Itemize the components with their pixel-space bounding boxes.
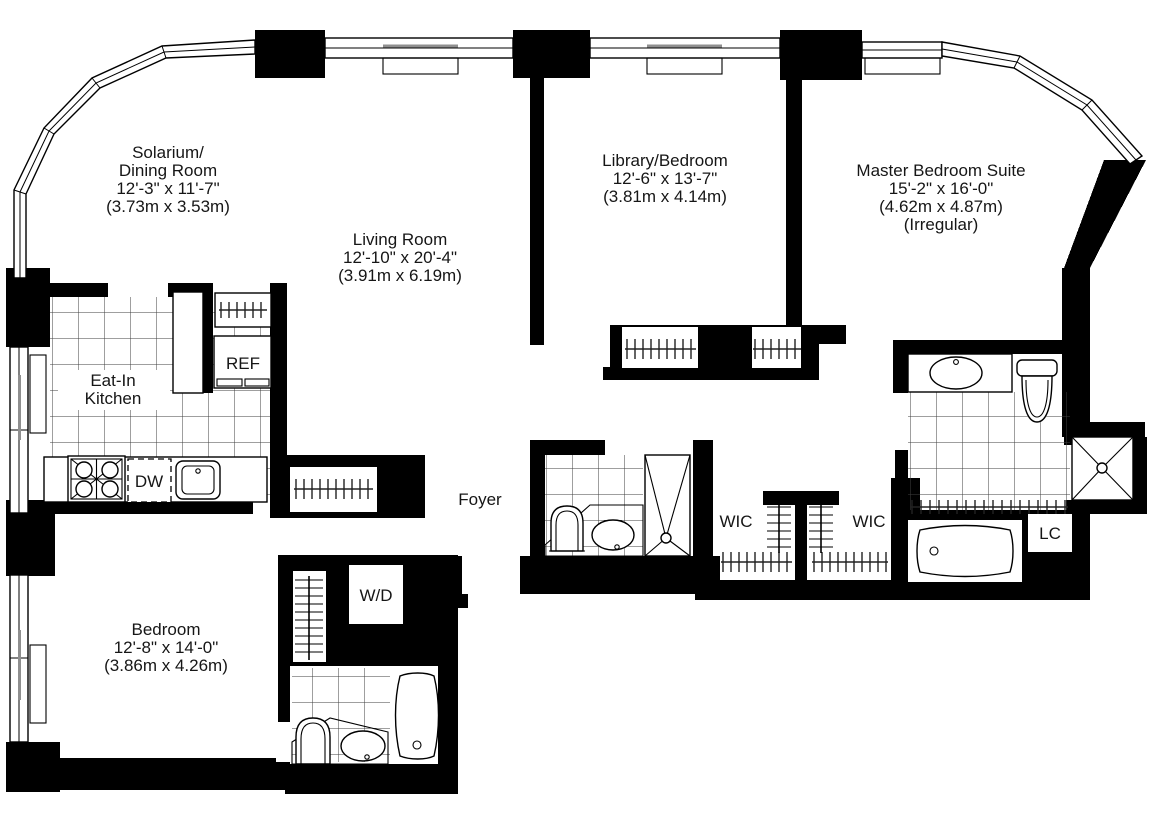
bathroom2-door-opening	[276, 722, 292, 762]
svg-text:(3.81m x 4.14m): (3.81m x 4.14m)	[603, 187, 727, 206]
svg-text:Eat-In: Eat-In	[90, 371, 135, 390]
svg-text:(3.86m x 4.26m): (3.86m x 4.26m)	[104, 656, 228, 675]
svg-text:Solarium/: Solarium/	[132, 143, 204, 162]
svg-text:15'-2" x 16'-0": 15'-2" x 16'-0"	[889, 179, 994, 198]
solarium-label: Solarium/ Dining Room 12'-3" x 11'-7" (3…	[106, 143, 230, 216]
kitchen-peninsula-counter	[173, 292, 203, 393]
toilet	[549, 506, 585, 551]
kitchen-label: Eat-In Kitchen	[58, 370, 170, 410]
master-shower	[1072, 437, 1133, 500]
refrigerator-label: REF	[226, 354, 260, 373]
angled-corner-wall	[1064, 160, 1146, 445]
floor-plan: Solarium/ Dining Room 12'-3" x 11'-7" (3…	[0, 0, 1151, 825]
bedroom-radiator	[30, 645, 46, 723]
svg-text:12'-8" x 14'-0": 12'-8" x 14'-0"	[114, 638, 219, 657]
kitchen-sink	[176, 461, 220, 499]
svg-text:(3.91m x 6.19m): (3.91m x 6.19m)	[338, 266, 462, 285]
wic-left-shelf	[767, 503, 791, 553]
dishwasher-label: DW	[135, 472, 163, 491]
svg-text:(4.62m x 4.87m): (4.62m x 4.87m)	[879, 197, 1003, 216]
vanity-sink	[908, 354, 1012, 392]
svg-text:Living Room: Living Room	[353, 230, 448, 249]
master-bath-door-opening	[893, 393, 908, 450]
wic-right-rod	[812, 552, 888, 572]
svg-text:12'-6" x 13'-7": 12'-6" x 13'-7"	[613, 169, 718, 188]
master-bedroom-label: Master Bedroom Suite 15'-2" x 16'-0" (4.…	[856, 161, 1025, 234]
wic-left-label: WIC	[719, 512, 752, 531]
stove	[68, 456, 125, 502]
library-closet-left	[622, 327, 698, 368]
bay-window-right	[942, 42, 1142, 164]
bedroom-label: Bedroom 12'-8" x 14'-0" (3.86m x 4.26m)	[104, 620, 228, 675]
svg-text:Dining Room: Dining Room	[119, 161, 217, 180]
kitchen-radiator	[30, 355, 46, 433]
svg-text:12'-3" x 11'-7": 12'-3" x 11'-7"	[116, 179, 219, 198]
foyer-label: Foyer	[458, 490, 502, 509]
svg-text:12'-10" x 20'-4": 12'-10" x 20'-4"	[343, 248, 457, 267]
window-seat-living	[383, 58, 458, 74]
wic-left-rod	[721, 552, 792, 572]
linen-closet-label: LC	[1039, 524, 1061, 543]
svg-text:Kitchen: Kitchen	[85, 389, 142, 408]
bath2-sink	[341, 731, 385, 761]
svg-text:Master Bedroom Suite: Master Bedroom Suite	[856, 161, 1025, 180]
library-label: Library/Bedroom 12'-6" x 13'-7" (3.81m x…	[602, 151, 728, 206]
shower	[645, 455, 690, 556]
living-room-label: Living Room 12'-10" x 20'-4" (3.91m x 6.…	[338, 230, 462, 285]
window-seat-library	[647, 58, 722, 74]
washer-dryer-label: W/D	[359, 586, 392, 605]
bathtub2	[390, 666, 439, 764]
svg-text:Library/Bedroom: Library/Bedroom	[602, 151, 728, 170]
window-seat-master	[865, 58, 940, 74]
library-closet-right	[752, 327, 801, 368]
bathtub	[917, 526, 1013, 577]
bath-sink	[592, 520, 634, 550]
svg-text:(Irregular): (Irregular)	[904, 215, 979, 234]
toilet2	[294, 718, 332, 764]
svg-text:(3.73m x 3.53m): (3.73m x 3.53m)	[106, 197, 230, 216]
wic-right-shelf	[809, 503, 833, 553]
svg-text:Bedroom: Bedroom	[132, 620, 201, 639]
wic-right-label: WIC	[852, 512, 885, 531]
